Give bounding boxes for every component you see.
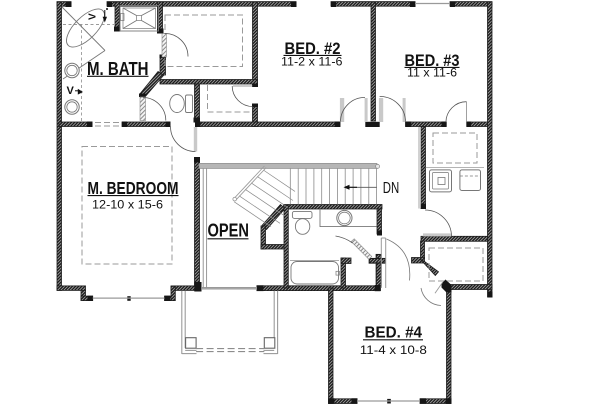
svg-text:V: V: [88, 13, 99, 20]
svg-text:11-2 x 11-6: 11-2 x 11-6: [281, 55, 343, 69]
svg-text:DN: DN: [383, 180, 400, 197]
svg-text:M. BEDROOM: M. BEDROOM: [88, 178, 179, 198]
svg-text:BED. #4: BED. #4: [365, 325, 423, 342]
svg-text:11-4 x 10-8: 11-4 x 10-8: [360, 343, 427, 357]
svg-text:11 x 11-6: 11 x 11-6: [407, 66, 457, 80]
svg-text:V: V: [67, 85, 75, 97]
svg-text:OPEN: OPEN: [208, 219, 250, 240]
svg-text:12-10 x 15-6: 12-10 x 15-6: [92, 198, 163, 212]
